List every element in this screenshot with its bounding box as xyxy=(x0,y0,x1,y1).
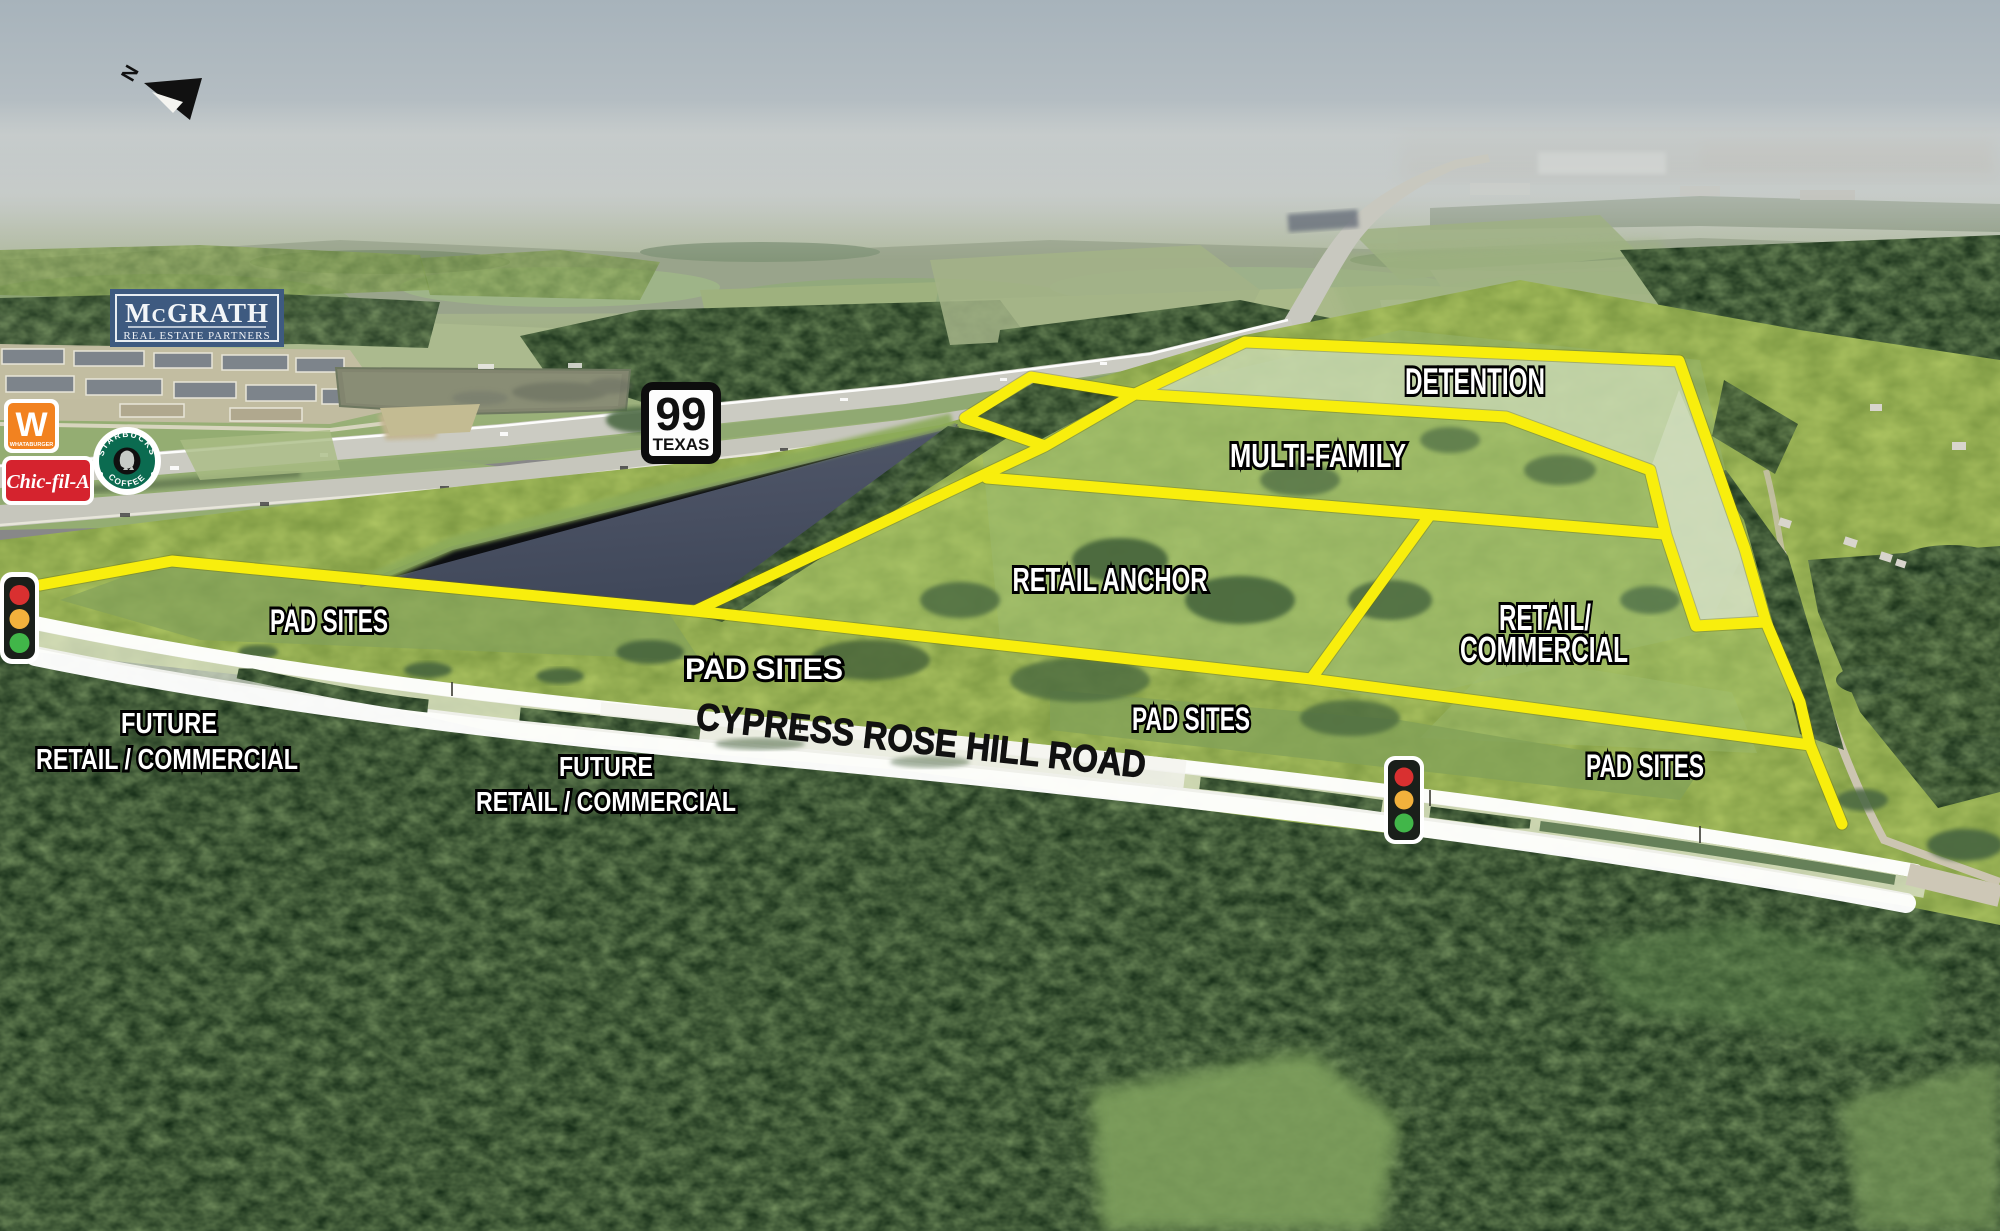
svg-text:RETAIL ANCHOR: RETAIL ANCHOR xyxy=(1013,561,1208,598)
svg-text:COMMERCIAL: COMMERCIAL xyxy=(1460,629,1628,670)
svg-text:MULTI-FAMILY: MULTI-FAMILY xyxy=(1230,437,1406,474)
svg-text:W: W xyxy=(15,406,48,444)
svg-text:PAD SITES: PAD SITES xyxy=(1132,701,1250,737)
svg-text:WHATABURGER: WHATABURGER xyxy=(10,442,54,448)
svg-text:REAL ESTATE PARTNERS: REAL ESTATE PARTNERS xyxy=(123,330,270,342)
svg-text:FUTURE: FUTURE xyxy=(121,708,217,740)
svg-text:DETENTION: DETENTION xyxy=(1405,361,1545,402)
svg-text:PAD SITES: PAD SITES xyxy=(1586,748,1704,784)
svg-text:PAD SITES: PAD SITES xyxy=(270,603,388,639)
svg-text:FUTURE: FUTURE xyxy=(559,751,653,782)
svg-text:MCGRATH: MCGRATH xyxy=(125,298,269,328)
svg-text:PAD SITES: PAD SITES xyxy=(685,653,843,686)
svg-text:Chic-fil-A: Chic-fil-A xyxy=(6,471,89,493)
svg-text:TEXAS: TEXAS xyxy=(653,435,710,454)
svg-text:RETAIL / COMMERCIAL: RETAIL / COMMERCIAL xyxy=(476,786,736,817)
svg-text:RETAIL / COMMERCIAL: RETAIL / COMMERCIAL xyxy=(36,744,298,776)
svg-text:99: 99 xyxy=(655,388,706,440)
